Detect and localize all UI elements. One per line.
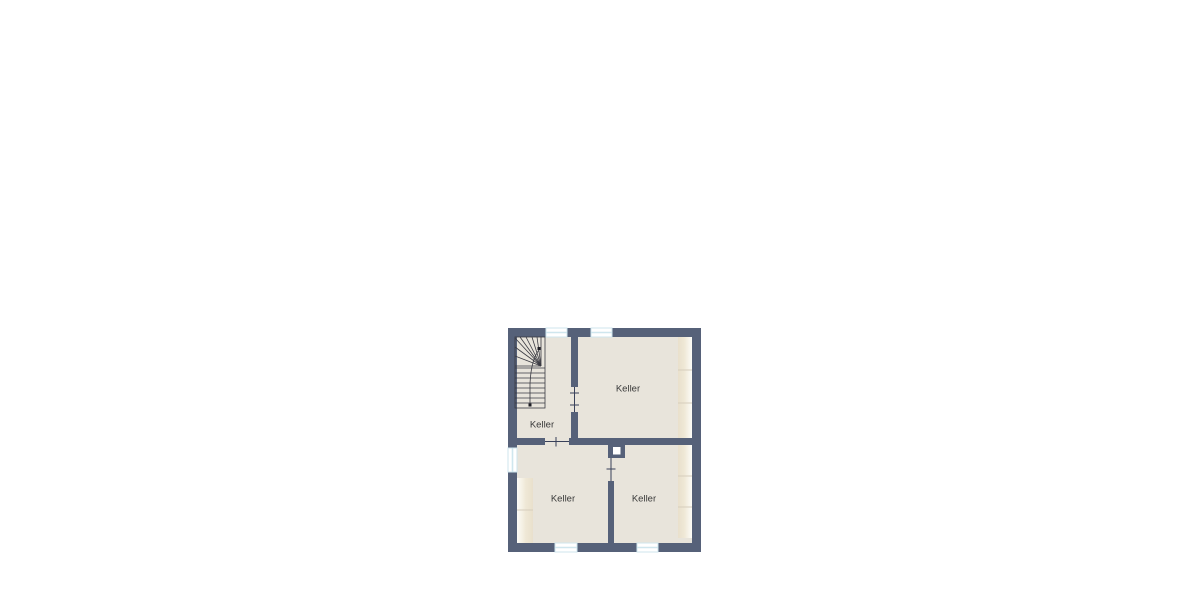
window-bottom-1-icon: [555, 543, 577, 552]
interior-wall-middle-right: [569, 438, 692, 445]
shelf-bottomright-room: [678, 445, 692, 538]
window-top-1-icon: [546, 328, 567, 337]
chimney: [608, 443, 625, 458]
window-top-2-icon: [591, 328, 612, 337]
room-label-stair-room: Keller: [530, 420, 554, 431]
exterior-wall-right: [692, 328, 701, 552]
page-canvas: Keller Keller Keller Keller: [0, 0, 1200, 600]
shelf-bottomleft-room: [517, 478, 533, 543]
interior-wall-bottom-divider: [608, 481, 614, 543]
exterior-wall-bottom: [508, 543, 701, 552]
window-bottom-2-icon: [637, 543, 658, 552]
interior-wall-stair-right-upper: [571, 337, 578, 387]
room-label-bottom-right: Keller: [632, 494, 656, 505]
room-label-bottom-left: Keller: [551, 494, 575, 505]
floor-plan: Keller Keller Keller Keller: [504, 322, 704, 554]
shelf-topright-room: [678, 337, 692, 438]
room-label-top-right: Keller: [616, 384, 640, 395]
window-left-icon: [508, 448, 517, 472]
interior-wall-middle-left: [517, 438, 545, 445]
exterior-wall-left: [508, 328, 517, 552]
